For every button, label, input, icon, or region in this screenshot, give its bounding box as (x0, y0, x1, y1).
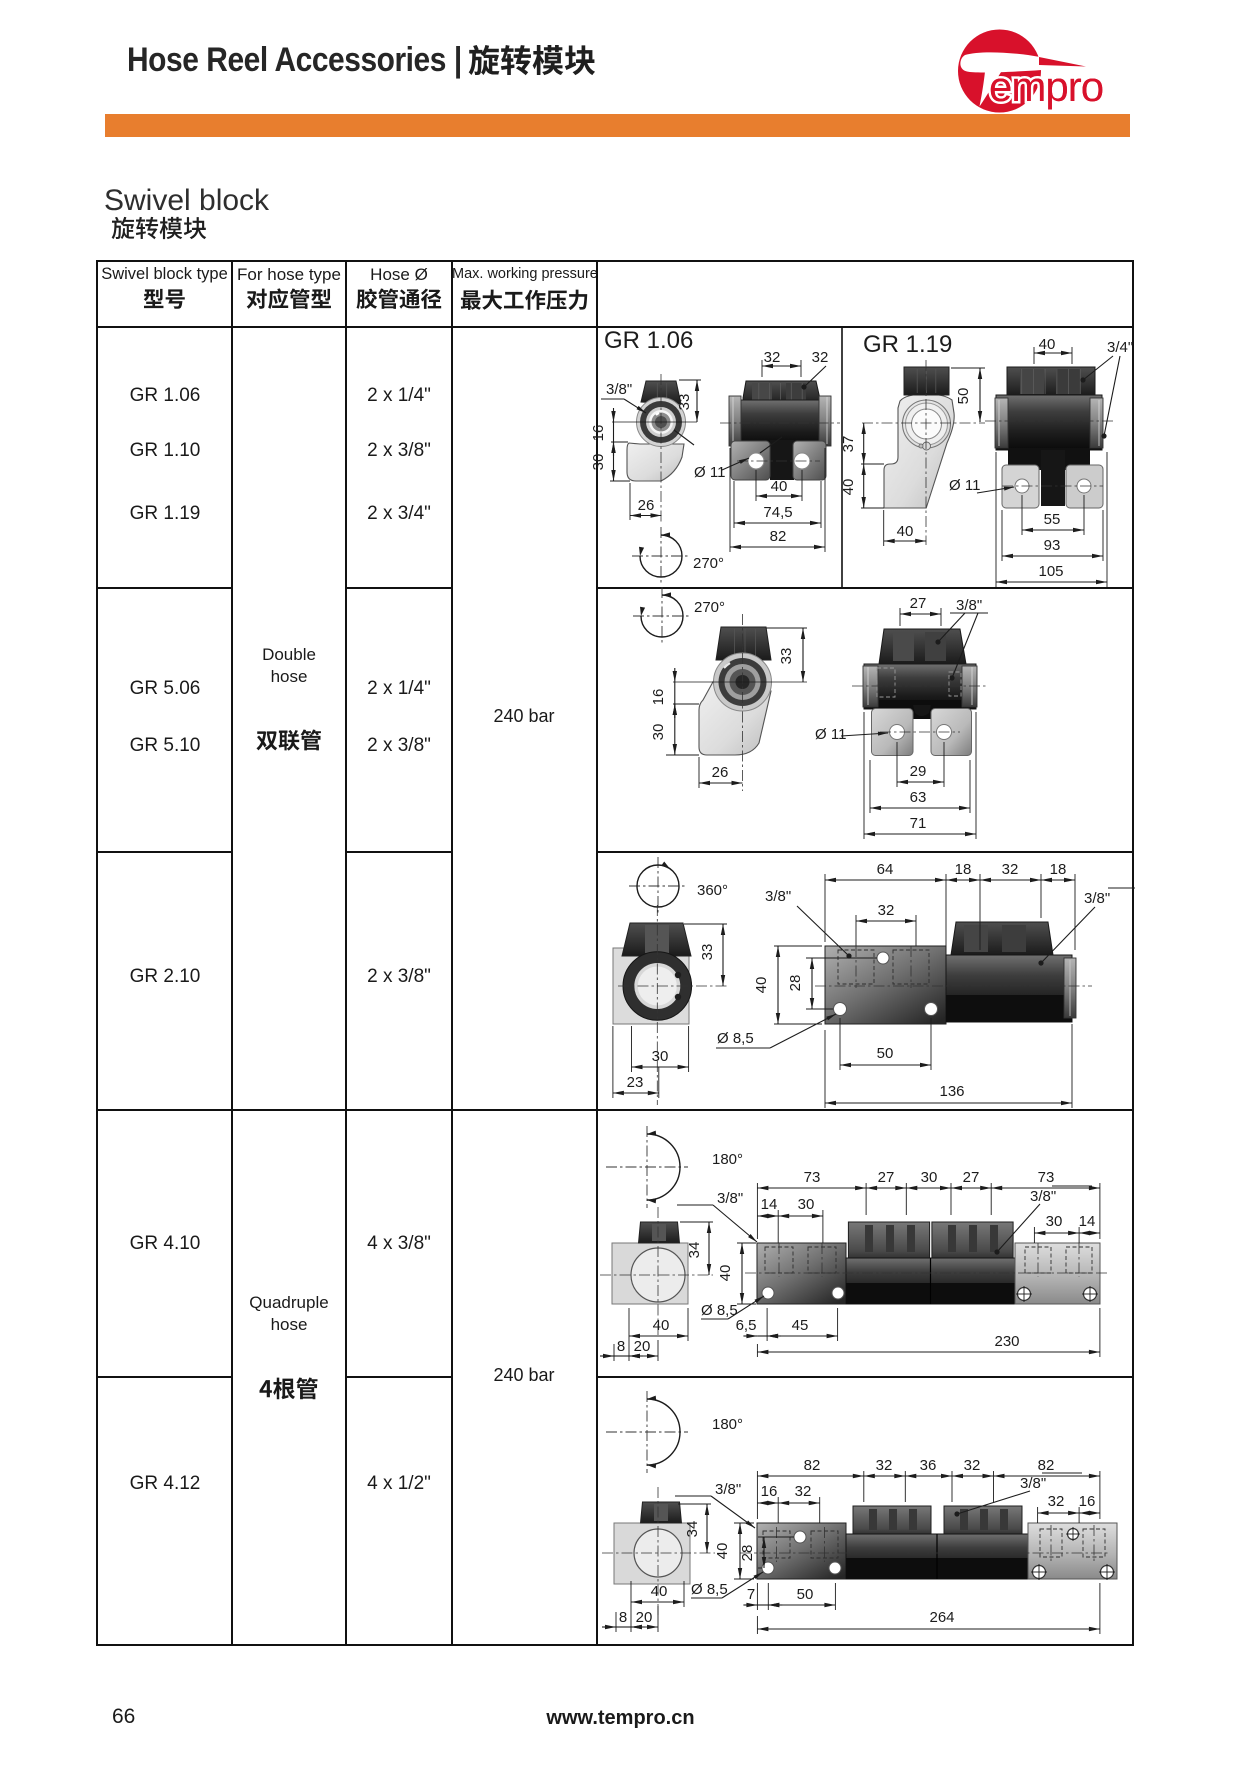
svg-text:105: 105 (1038, 563, 1063, 580)
svg-text:40: 40 (753, 977, 770, 994)
svg-text:270°: 270° (694, 599, 725, 616)
svg-text:8: 8 (617, 1338, 625, 1355)
svg-text:50: 50 (877, 1045, 894, 1062)
svg-text:32: 32 (764, 349, 781, 366)
svg-text:3/8": 3/8" (1030, 1188, 1056, 1205)
svg-text:40: 40 (653, 1317, 670, 1334)
svg-text:30: 30 (1046, 1213, 1063, 1230)
svg-text:93: 93 (1044, 537, 1061, 554)
svg-text:36: 36 (920, 1457, 937, 1474)
svg-text:82: 82 (770, 528, 787, 545)
svg-text:14: 14 (1079, 1213, 1096, 1230)
svg-text:40: 40 (714, 1543, 731, 1560)
svg-text:3/8": 3/8" (717, 1190, 743, 1207)
svg-text:40: 40 (771, 478, 788, 495)
svg-text:3/8": 3/8" (765, 888, 791, 905)
svg-text:3/8": 3/8" (1020, 1475, 1046, 1492)
svg-text:32: 32 (795, 1483, 812, 1500)
svg-text:64: 64 (877, 861, 894, 878)
svg-text:27: 27 (963, 1169, 980, 1186)
svg-text:16: 16 (650, 689, 667, 706)
svg-text:40: 40 (897, 523, 914, 540)
svg-text:32: 32 (964, 1457, 981, 1474)
svg-text:30: 30 (650, 724, 667, 741)
svg-text:74,5: 74,5 (763, 504, 792, 521)
svg-text:360°: 360° (697, 882, 728, 899)
svg-text:32: 32 (1002, 861, 1019, 878)
svg-text:136: 136 (939, 1083, 964, 1100)
svg-text:Ø 11: Ø 11 (949, 477, 980, 494)
svg-text:63: 63 (910, 789, 927, 806)
svg-text:230: 230 (994, 1333, 1019, 1350)
svg-text:50: 50 (797, 1586, 814, 1603)
svg-text:3/4": 3/4" (1107, 339, 1133, 356)
svg-text:30: 30 (798, 1196, 815, 1213)
svg-text:34: 34 (684, 1521, 701, 1538)
svg-text:14: 14 (761, 1196, 778, 1213)
svg-text:32: 32 (812, 349, 829, 366)
svg-text:270°: 270° (693, 555, 724, 572)
svg-text:3/8": 3/8" (606, 381, 632, 398)
svg-text:16: 16 (1079, 1493, 1096, 1510)
svg-text:32: 32 (876, 1457, 893, 1474)
svg-text:33: 33 (778, 648, 795, 665)
svg-text:27: 27 (910, 595, 927, 612)
svg-text:7: 7 (747, 1586, 755, 1603)
svg-text:23: 23 (627, 1074, 644, 1091)
svg-text:40: 40 (651, 1583, 668, 1600)
svg-text:50: 50 (955, 388, 972, 405)
svg-text:33: 33 (699, 944, 716, 961)
svg-text:GR 1.19: GR 1.19 (863, 331, 952, 358)
svg-text:40: 40 (1039, 336, 1056, 353)
svg-text:180°: 180° (712, 1151, 743, 1168)
svg-text:73: 73 (804, 1169, 821, 1186)
svg-text:29: 29 (910, 763, 927, 780)
svg-text:3/8": 3/8" (715, 1481, 741, 1498)
svg-text:82: 82 (804, 1457, 821, 1474)
svg-text:180°: 180° (712, 1416, 743, 1433)
svg-text:37: 37 (840, 436, 857, 453)
svg-text:45: 45 (792, 1317, 809, 1334)
svg-text:18: 18 (955, 861, 972, 878)
svg-text:Ø 11: Ø 11 (694, 464, 725, 481)
svg-text:30: 30 (590, 454, 607, 471)
svg-text:32: 32 (1048, 1493, 1065, 1510)
svg-text:GR 1.06: GR 1.06 (604, 327, 693, 354)
svg-text:40: 40 (717, 1265, 734, 1282)
svg-text:26: 26 (712, 764, 729, 781)
svg-text:33: 33 (676, 394, 693, 411)
svg-text:8: 8 (619, 1609, 627, 1626)
svg-text:Ø 8,5: Ø 8,5 (717, 1030, 754, 1047)
svg-text:34: 34 (686, 1242, 703, 1259)
svg-text:82: 82 (1038, 1457, 1055, 1474)
svg-text:20: 20 (636, 1609, 653, 1626)
svg-text:3/8": 3/8" (1084, 890, 1110, 907)
svg-text:18: 18 (1050, 861, 1067, 878)
svg-text:30: 30 (652, 1048, 669, 1065)
svg-text:71: 71 (910, 815, 927, 832)
svg-text:28: 28 (787, 975, 804, 992)
svg-text:27: 27 (878, 1169, 895, 1186)
svg-text:264: 264 (929, 1609, 954, 1626)
svg-text:55: 55 (1044, 511, 1061, 528)
svg-text:Ø 11: Ø 11 (815, 726, 846, 743)
svg-text:28: 28 (739, 1545, 756, 1562)
svg-text:16: 16 (761, 1483, 778, 1500)
svg-text:16: 16 (590, 425, 607, 442)
svg-text:32: 32 (878, 902, 895, 919)
svg-text:73: 73 (1038, 1169, 1055, 1186)
svg-text:6,5: 6,5 (736, 1317, 757, 1334)
svg-text:3/8": 3/8" (956, 597, 982, 614)
svg-text:Ø 8,5: Ø 8,5 (691, 1581, 728, 1598)
svg-text:40: 40 (840, 479, 857, 496)
svg-text:20: 20 (634, 1338, 651, 1355)
svg-text:26: 26 (638, 497, 655, 514)
svg-text:30: 30 (921, 1169, 938, 1186)
